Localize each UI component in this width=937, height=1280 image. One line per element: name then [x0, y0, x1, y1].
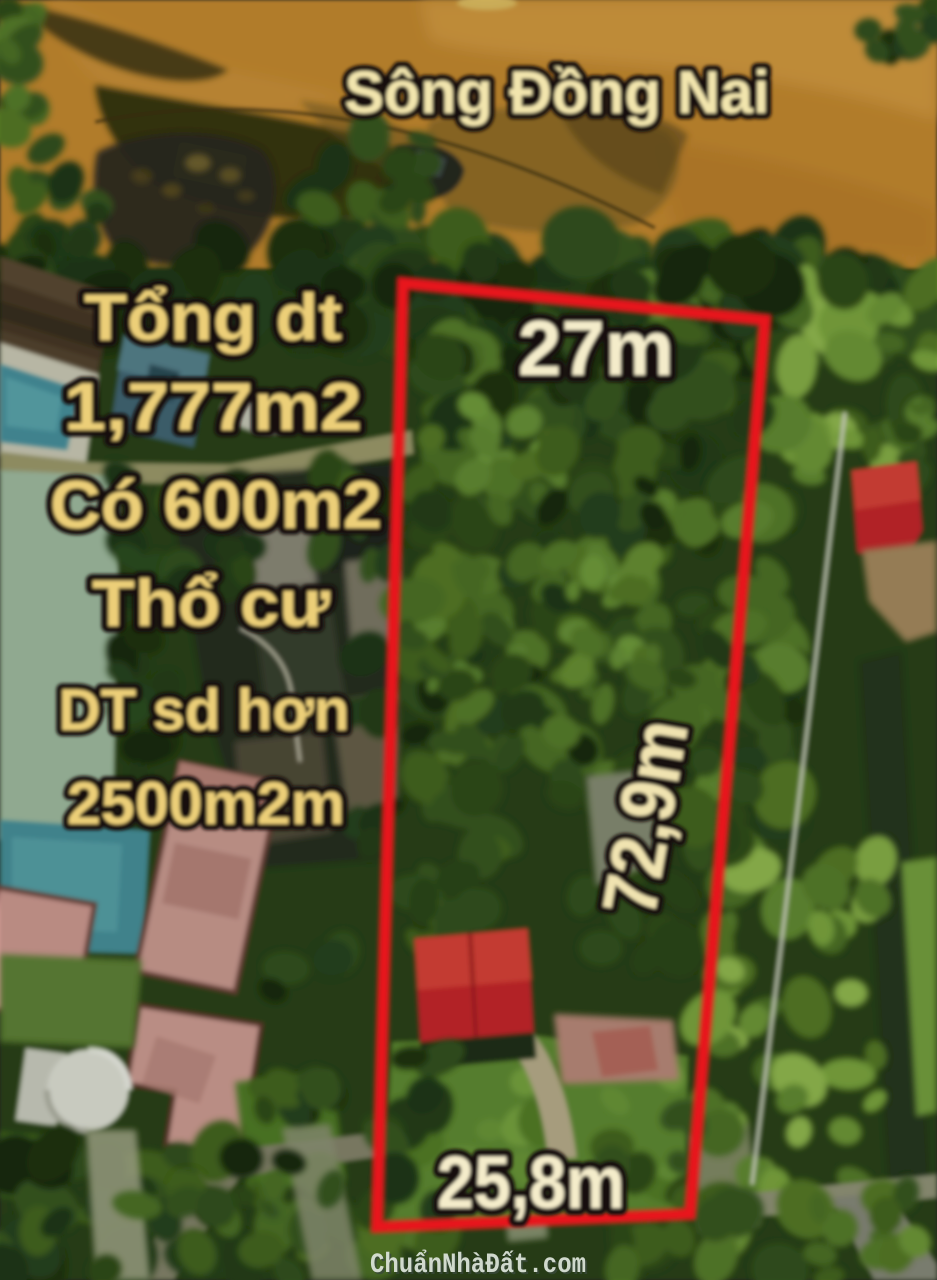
svg-text:2500m2m: 2500m2m [67, 770, 345, 837]
svg-text:1,777m2: 1,777m2 [64, 369, 362, 445]
svg-text:25,8m: 25,8m [437, 1141, 625, 1224]
svg-text:Sông Đồng Nai: Sông Đồng Nai [345, 59, 770, 126]
svg-text:Có 600m2: Có 600m2 [50, 467, 382, 543]
svg-text:ChuẩnNhàĐất.com: ChuẩnNhàĐất.com [370, 1249, 586, 1280]
svg-text:27m: 27m [518, 304, 674, 392]
svg-text:DT sd hơn: DT sd hơn [59, 678, 350, 743]
svg-text:Tổng dt: Tổng dt [84, 280, 342, 354]
svg-text:Thổ cư: Thổ cư [92, 566, 330, 640]
